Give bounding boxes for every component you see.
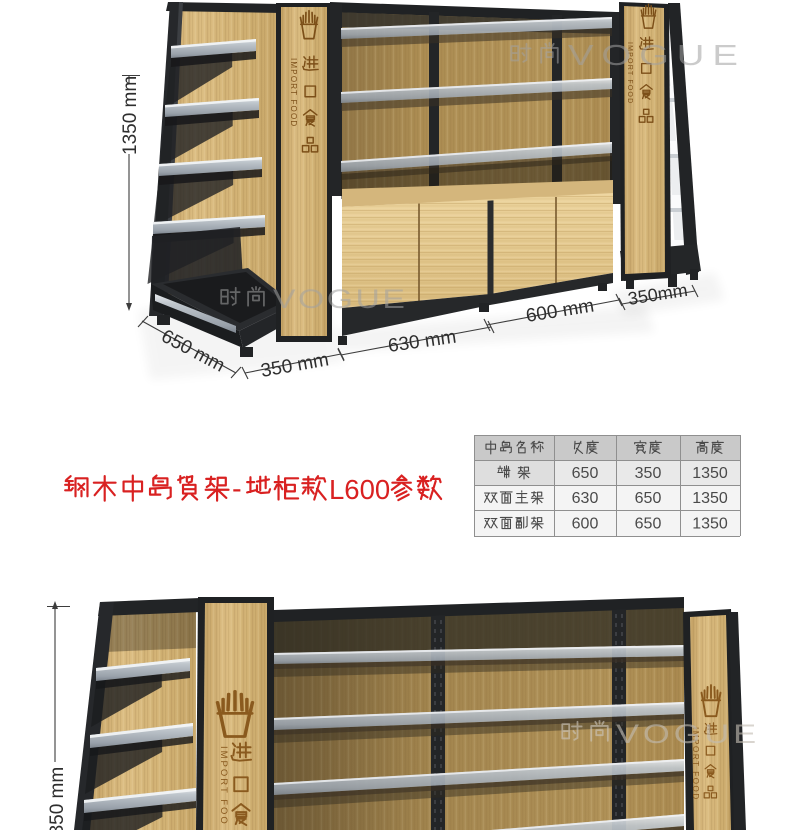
svg-text:1350: 1350 xyxy=(692,516,728,533)
svg-text:VOGUE: VOGUE xyxy=(568,39,746,71)
svg-text:350: 350 xyxy=(635,465,662,482)
svg-text:1350: 1350 xyxy=(692,465,728,482)
svg-text:1350 mm: 1350 mm xyxy=(47,767,68,830)
svg-text:IMPORT FOOD: IMPORT FOOD xyxy=(289,58,298,127)
svg-text:600: 600 xyxy=(572,516,599,533)
svg-text:650: 650 xyxy=(635,490,662,507)
svg-text:1350: 1350 xyxy=(692,490,728,507)
svg-text:630: 630 xyxy=(572,490,599,507)
svg-text:1350 mm: 1350 mm xyxy=(120,76,141,155)
svg-text:IMPORT FOO: IMPORT FOO xyxy=(218,746,229,826)
svg-text:650: 650 xyxy=(572,465,599,482)
svg-text:VOGUE: VOGUE xyxy=(616,719,760,749)
svg-text:VOGUE: VOGUE xyxy=(273,284,407,314)
svg-text:650: 650 xyxy=(635,516,662,533)
